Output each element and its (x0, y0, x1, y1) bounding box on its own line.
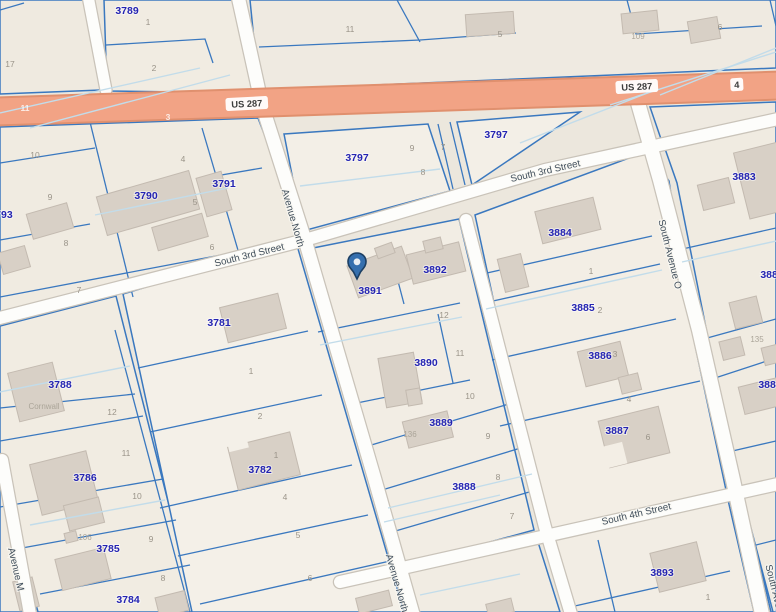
parcel-number: 3883 (732, 171, 756, 183)
parcel-number: 3889 (429, 417, 453, 429)
parcel-number: 3892 (423, 264, 447, 276)
lot-number: 6 (718, 22, 723, 32)
highway-name-label: US 287 (621, 81, 652, 93)
parcel-number: 3781 (207, 317, 231, 329)
house-number: 109 (631, 32, 645, 41)
lot-number: 10 (132, 491, 142, 501)
parcel-number: 3888 (452, 481, 476, 493)
parcel-number: 3884 (548, 227, 572, 239)
lot-number: 6 (210, 242, 215, 252)
lot-number: 1 (706, 592, 711, 602)
parcel-number: 3890 (414, 357, 438, 369)
lot-number: 6 (308, 573, 313, 583)
parcel-map-viewport[interactable]: US 287US 2874South 3rd StreetSouth 3rd S… (0, 0, 776, 612)
parcel-number: 3886 (588, 350, 612, 362)
lot-number: 5 (296, 530, 301, 540)
lot-number: 11 (346, 24, 355, 34)
lot-number: 12 (107, 407, 117, 417)
lot-number: 6 (646, 432, 651, 442)
house-number: Cornwall (28, 402, 59, 411)
parcel-number: 3885 (760, 269, 776, 281)
lot-number: 5 (193, 197, 198, 207)
lot-number: 8 (496, 472, 501, 482)
lot-number: 1 (274, 450, 279, 460)
lot-number: 1 (146, 17, 151, 27)
lot-number: 9 (486, 431, 491, 441)
lot-number: 8 (421, 167, 426, 177)
parcel-number: 3885 (571, 302, 595, 314)
highway-name-label: US 287 (231, 98, 262, 110)
house-number: 106 (78, 533, 92, 542)
lot-number: 8 (161, 573, 166, 583)
lot-number: 10 (465, 391, 475, 401)
lot-number: 1 (249, 366, 254, 376)
parcel-number: 3788 (48, 379, 72, 391)
parcel-number: 3793 (0, 209, 13, 221)
lot-number: 5 (498, 29, 503, 39)
parcel-number: 3797 (345, 152, 369, 164)
lot-number: 4 (283, 492, 288, 502)
highway-number-label: 3 (166, 112, 171, 122)
house-number: 135 (750, 335, 764, 344)
parcel-number: 3785 (96, 543, 120, 555)
lot-number: 9 (48, 192, 53, 202)
lot-number: 2 (598, 305, 603, 315)
lot-number: 7 (510, 511, 515, 521)
parcel-number: 3887 (605, 425, 629, 437)
parcel-number: 3880 (758, 379, 776, 391)
lot-number: 7 (77, 285, 82, 295)
parcel-number: 3790 (134, 190, 158, 202)
lot-number: 2 (258, 411, 263, 421)
lot-number: 11 (456, 348, 465, 358)
parcel-number: 3893 (650, 567, 674, 579)
lot-number: 2 (152, 63, 157, 73)
parcel-number: 3789 (115, 5, 139, 17)
parcel-number: 3784 (116, 594, 140, 606)
lot-number: 10 (30, 150, 40, 160)
lot-number: 4 (627, 394, 632, 404)
lot-number: 1 (589, 266, 594, 276)
lot-number: 4 (181, 154, 186, 164)
parcel-number: 3782 (248, 464, 272, 476)
lot-number: 3 (613, 349, 618, 359)
house-number: 136 (403, 430, 417, 439)
lot-number: 9 (410, 143, 415, 153)
lot-number: 17 (5, 59, 15, 69)
highway-number-label: 11 (21, 103, 30, 113)
parcel-number: 3791 (212, 178, 236, 190)
lot-number: 11 (122, 448, 131, 458)
lot-number: 8 (64, 238, 69, 248)
pin-dot (354, 258, 361, 265)
parcel-number: 3891 (358, 285, 382, 297)
lot-number: 7 (441, 142, 446, 152)
lot-number: 9 (149, 534, 154, 544)
parcel-number: 3786 (73, 472, 97, 484)
lot-number: 12 (439, 310, 449, 320)
parcel-number: 3797 (484, 129, 508, 141)
map-canvas[interactable]: US 287US 2874South 3rd StreetSouth 3rd S… (0, 0, 776, 612)
